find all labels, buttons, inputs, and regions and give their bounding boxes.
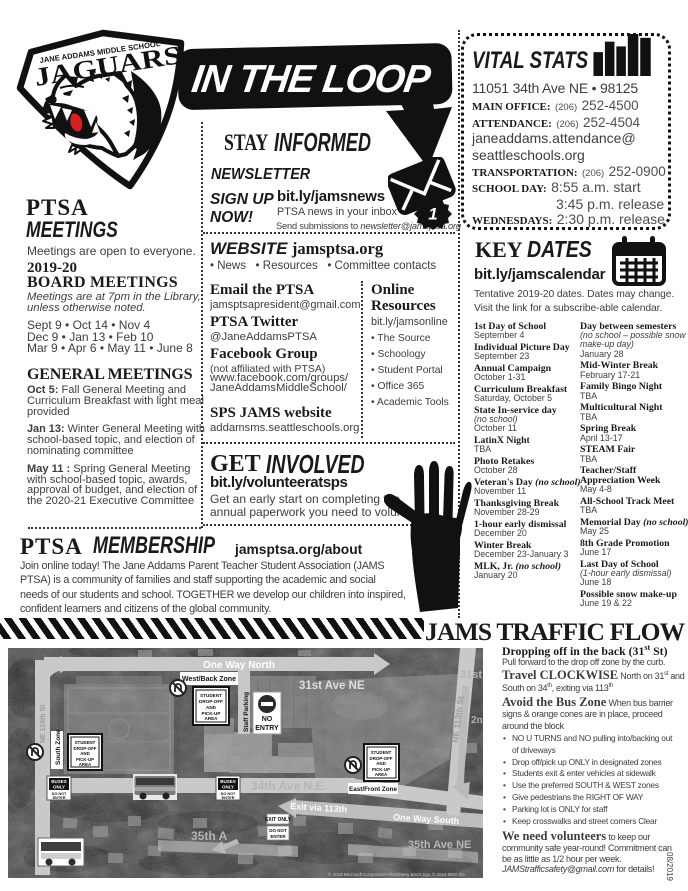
svg-text:34th Ave N.E.: 34th Ave N.E. (251, 779, 327, 793)
svg-text:STUDENT: STUDENT (200, 693, 222, 698)
svg-text:ENTER: ENTER (53, 796, 66, 800)
svg-text:AND: AND (80, 751, 90, 756)
svg-text:EXIT ONLY: EXIT ONLY (265, 817, 292, 823)
svg-text:31st Ave NE: 31st Ave NE (299, 680, 365, 692)
svg-text:STUDENT: STUDENT (75, 740, 96, 745)
svg-text:East/Front Zone: East/Front Zone (349, 786, 397, 793)
svg-text:AREA: AREA (79, 762, 92, 767)
svg-text:STUDENT: STUDENT (371, 750, 392, 755)
svg-text:DROP-OFF: DROP-OFF (199, 699, 223, 704)
svg-text:IN THE LOOP: IN THE LOOP (189, 58, 434, 101)
svg-text:South Zone: South Zone (55, 729, 62, 765)
svg-text:AREA: AREA (375, 772, 388, 777)
svg-text:1: 1 (428, 205, 437, 224)
svg-text:One Way North: One Way North (203, 660, 275, 671)
svg-text:2n: 2n (471, 715, 483, 726)
svg-text:ONLY: ONLY (222, 785, 234, 790)
svg-text:© 2019 Microsoft Corporation: © 2019 Microsoft Corporation Pictometry … (328, 871, 465, 877)
svg-text:ONLY: ONLY (53, 785, 65, 790)
svg-text:NE 110th St: NE 110th St (40, 704, 47, 743)
svg-text:BUSES: BUSES (51, 779, 67, 784)
svg-text:AND: AND (206, 705, 217, 710)
svg-text:West/Back Zone: West/Back Zone (182, 676, 236, 683)
svg-text:AND: AND (376, 761, 386, 766)
svg-text:Staff Parking: Staff Parking (243, 692, 250, 732)
svg-text:AREA: AREA (204, 716, 218, 721)
svg-text:31st: 31st (460, 669, 482, 681)
svg-text:DO NOT: DO NOT (269, 828, 287, 833)
svg-text:35th A: 35th A (191, 829, 228, 843)
svg-text:35th Ave NE: 35th Ave NE (408, 839, 471, 851)
svg-text:NO: NO (262, 716, 273, 723)
svg-text:ENTER: ENTER (270, 834, 286, 839)
svg-text:ENTRY: ENTRY (255, 725, 279, 732)
svg-text:BUSES: BUSES (220, 779, 236, 784)
svg-text:ENTER: ENTER (222, 796, 235, 800)
